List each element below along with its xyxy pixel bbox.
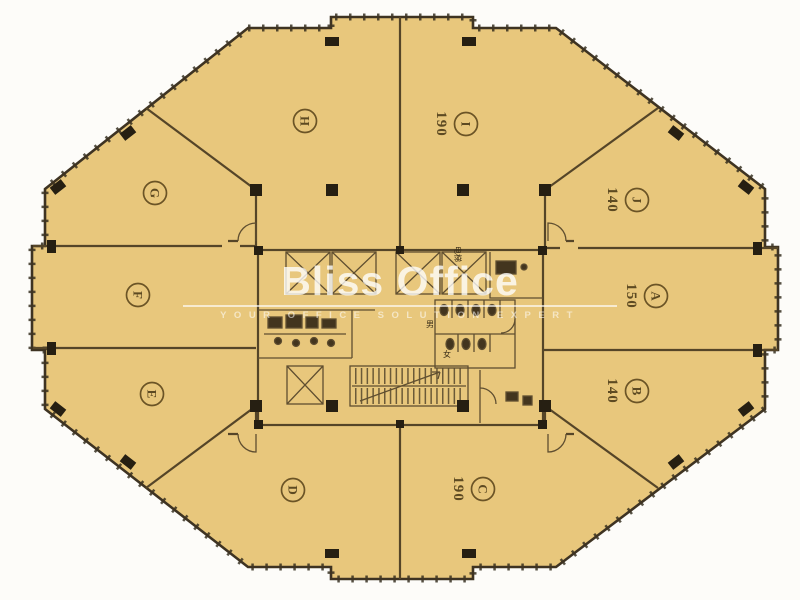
pantry-sink	[328, 340, 335, 347]
pantry-sink	[293, 340, 300, 347]
toilet	[440, 305, 448, 316]
male-restroom-label: 男	[426, 320, 434, 329]
toilet	[462, 339, 470, 350]
column	[538, 420, 547, 429]
equipment-unit	[496, 261, 516, 274]
column	[753, 242, 762, 255]
svg-text:B: B	[630, 387, 645, 396]
equipment-gauge	[521, 264, 527, 270]
svg-text:F: F	[131, 291, 146, 299]
column	[538, 246, 547, 255]
column	[326, 400, 338, 412]
svg-text:C: C	[476, 484, 491, 493]
column	[462, 549, 476, 558]
column	[539, 400, 551, 412]
column	[396, 246, 404, 254]
pantry-appliance	[322, 319, 336, 328]
column	[47, 240, 56, 253]
column	[325, 549, 339, 558]
svg-text:A: A	[649, 291, 664, 301]
svg-text:I: I	[459, 121, 474, 126]
svg-text:190: 190	[450, 476, 466, 502]
svg-text:140: 140	[604, 187, 620, 213]
toilet	[472, 305, 480, 316]
svg-text:150: 150	[623, 283, 639, 309]
column	[326, 184, 338, 196]
column	[539, 184, 551, 196]
column	[753, 344, 762, 357]
column	[396, 420, 404, 428]
floor-plan-page: 电梯 男 女	[0, 0, 800, 600]
svg-text:190: 190	[433, 111, 449, 137]
pantry-sink	[275, 338, 282, 345]
toilet	[446, 339, 454, 350]
service-fixture	[523, 396, 532, 405]
svg-text:E: E	[145, 390, 160, 399]
column	[47, 342, 56, 355]
elevator-lobby-label: 电梯	[453, 246, 463, 262]
column	[254, 420, 263, 429]
column	[325, 37, 339, 46]
column	[250, 400, 262, 412]
column	[462, 37, 476, 46]
toilet	[456, 305, 464, 316]
floor-plan-svg: 电梯 男 女	[0, 0, 800, 600]
column	[254, 246, 263, 255]
svg-text:H: H	[298, 116, 313, 126]
svg-text:J: J	[630, 197, 645, 204]
column	[457, 400, 469, 412]
svg-text:140: 140	[604, 378, 620, 404]
service-fixture	[506, 392, 518, 401]
column	[250, 184, 262, 196]
pantry-appliance	[286, 315, 302, 328]
svg-text:D: D	[286, 485, 301, 494]
pantry-appliance	[306, 317, 318, 328]
toilet	[478, 339, 486, 350]
toilet	[488, 305, 496, 316]
female-restroom-label: 女	[443, 349, 451, 359]
svg-text:G: G	[148, 188, 163, 198]
pantry-appliance	[268, 317, 282, 328]
pantry-sink	[311, 338, 318, 345]
column	[457, 184, 469, 196]
